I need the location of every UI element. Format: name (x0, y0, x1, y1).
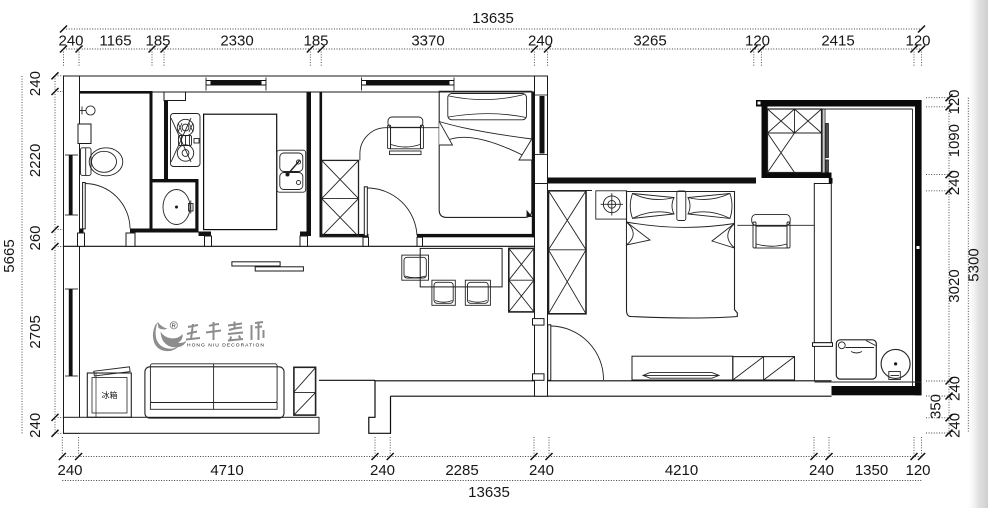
svg-text:240: 240 (27, 71, 44, 96)
svg-text:120: 120 (905, 462, 930, 479)
svg-text:1350: 1350 (855, 462, 888, 479)
svg-text:5665: 5665 (1, 239, 18, 272)
svg-text:2330: 2330 (220, 33, 253, 50)
svg-text:240: 240 (809, 462, 834, 479)
svg-text:1165: 1165 (99, 33, 131, 50)
svg-text:260: 260 (27, 225, 44, 250)
svg-text:13635: 13635 (468, 484, 510, 501)
svg-text:2220: 2220 (27, 144, 44, 177)
svg-text:120: 120 (946, 89, 963, 114)
svg-text:240: 240 (529, 462, 554, 479)
svg-text:HONG NIU DECORATION: HONG NIU DECORATION (187, 343, 265, 349)
svg-text:240: 240 (947, 376, 964, 401)
svg-text:4710: 4710 (210, 462, 243, 479)
svg-text:2285: 2285 (445, 462, 478, 479)
svg-text:R: R (172, 324, 176, 330)
svg-text:240: 240 (370, 462, 395, 479)
svg-text:350: 350 (928, 394, 945, 419)
svg-text:5300: 5300 (966, 248, 983, 281)
svg-text:120: 120 (745, 33, 770, 50)
svg-text:240: 240 (58, 33, 83, 50)
svg-text:2705: 2705 (27, 315, 44, 348)
svg-text:冰箱: 冰箱 (102, 390, 118, 400)
svg-text:240: 240 (27, 413, 44, 438)
svg-text:3020: 3020 (946, 269, 963, 302)
svg-text:3265: 3265 (633, 33, 666, 50)
svg-text:4210: 4210 (665, 462, 698, 479)
svg-text:240: 240 (57, 462, 82, 479)
svg-text:3370: 3370 (411, 33, 444, 50)
svg-text:2415: 2415 (821, 33, 854, 50)
svg-text:240: 240 (947, 413, 964, 438)
svg-text:185: 185 (303, 33, 328, 50)
svg-text:13635: 13635 (472, 10, 514, 27)
svg-text:1090: 1090 (946, 124, 963, 157)
svg-text:120: 120 (905, 33, 930, 50)
